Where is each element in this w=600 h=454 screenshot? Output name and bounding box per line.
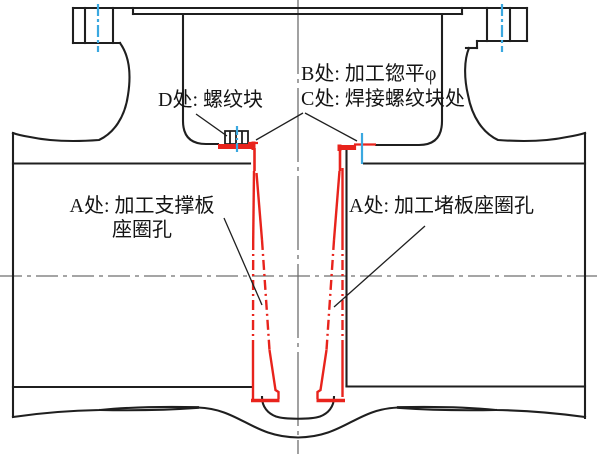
note-d-thread-block: D处: 螺纹块 — [158, 88, 263, 112]
valve-body-machining-drawing: B处: 加工锪平φ C处: 焊接螺纹块处 D处: 螺纹块 A处: 加工支撑板 座… — [0, 0, 600, 454]
note-a-support-plate-line2: 座圈孔 — [52, 218, 232, 242]
seat-highlight-left — [218, 142, 280, 401]
leader-d — [196, 114, 227, 136]
leader-bc-left — [256, 113, 303, 140]
note-b-spotface: B处: 加工锪平φ — [301, 62, 436, 86]
leader-bc-right — [305, 113, 357, 141]
note-a-blind-plate: A处: 加工堵板座圈孔 — [349, 194, 534, 218]
note-a-support-plate-line1: A处: 加工支撑板 — [52, 194, 232, 218]
note-a-support-plate: A处: 加工支撑板 座圈孔 — [52, 194, 232, 242]
note-c-welded-thread-block: C处: 焊接螺纹块处 — [301, 87, 465, 111]
leader-a-right — [334, 226, 425, 307]
